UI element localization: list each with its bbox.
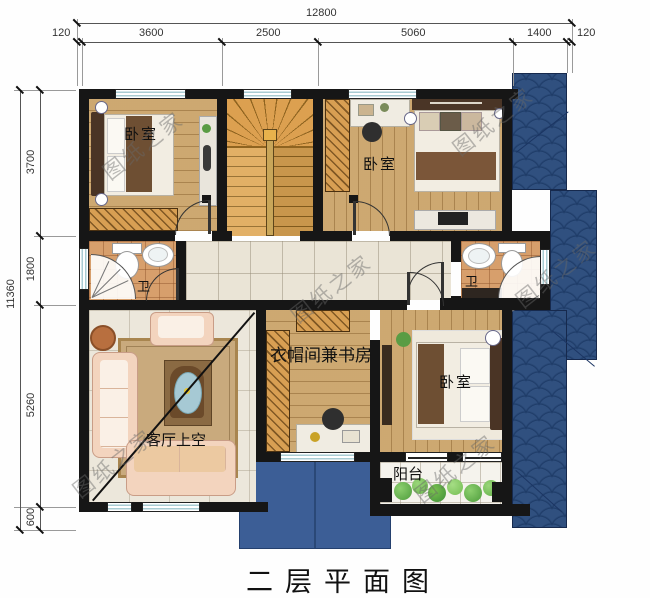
bed-headboard [91, 112, 104, 196]
dim-top-seg: 3600 [139, 27, 163, 39]
balcony-pier [380, 478, 392, 502]
dim-top-seg: 1400 [527, 27, 551, 39]
desk-item [358, 104, 374, 116]
dim-extension [572, 19, 573, 73]
room-label-bedroom-bottom-right: 卧室 [439, 371, 473, 392]
dim-left-seg: 3700 [25, 132, 37, 192]
dim-top-seg: 120 [52, 27, 70, 39]
wall-outer-left [79, 89, 89, 512]
wall [79, 300, 407, 310]
bed-blanket [416, 152, 496, 180]
dim-line-top-segments [77, 42, 572, 43]
window-top-3 [348, 89, 417, 99]
wall-balcony-right [502, 452, 512, 516]
tv [438, 212, 468, 225]
bed-pillow [419, 112, 440, 131]
dim-left-seg: 1800 [25, 239, 37, 299]
wardrobe-bedroom-top-left [89, 208, 178, 231]
wall-outer-right-mid [502, 310, 512, 452]
dim-extension [513, 38, 514, 86]
dim-left-seg: 600 [25, 487, 37, 547]
canopy-seam [314, 459, 316, 548]
wardrobe-bedroom-top-right [325, 99, 350, 192]
bedside-lamp [485, 330, 501, 346]
wall [451, 241, 461, 262]
door-leaf [441, 262, 444, 298]
dim-left-total: 11360 [5, 264, 17, 324]
room-label-cloakroom-study: 衣帽间兼书房 [270, 341, 372, 366]
bedside-lamp [95, 101, 108, 114]
plant-small [202, 124, 211, 133]
wall [300, 231, 352, 241]
desk-plant [380, 103, 389, 112]
wall-stair-right [313, 99, 323, 241]
dim-left-seg: 5260 [25, 375, 37, 435]
dim-extension [82, 38, 83, 86]
roof-right-lower [512, 310, 567, 528]
dim-extension [222, 38, 223, 86]
teapot [310, 432, 320, 442]
dim-line-top-total [77, 23, 572, 24]
tv-bench [382, 345, 392, 425]
armchair-cushion [158, 316, 204, 338]
room-label-bath-right: 卫 [465, 271, 478, 290]
dim-extension [14, 507, 76, 508]
bedside-lamp [404, 112, 417, 125]
wall-stair-left [217, 99, 227, 241]
window-bath-left [79, 248, 89, 290]
bedside-lamp [95, 193, 108, 206]
headboard-shelf-line [430, 102, 482, 104]
desk-chair [362, 122, 382, 142]
stair-newel-post [263, 129, 277, 141]
dim-top-seg: 5060 [401, 27, 425, 39]
dresser-decor [203, 145, 211, 171]
window-top-1 [115, 89, 186, 99]
wall [79, 231, 175, 241]
dim-top-total: 12800 [306, 7, 337, 19]
room-label-bath-left: 卫 [137, 276, 150, 295]
window-bottom-1 [107, 502, 132, 512]
dim-extension [318, 38, 319, 86]
window-study-bottom [280, 452, 355, 462]
wall-balcony-left [370, 452, 380, 516]
plant [464, 484, 482, 502]
dim-extension [14, 90, 76, 91]
floor-plan-canvas: 卧室 卧室 卧室 卫 卫 衣帽间兼书房 客厅上空 阳台 12800 120 36… [0, 0, 650, 598]
sink-basin [148, 247, 168, 262]
study-chair [322, 408, 344, 430]
dim-extension [14, 530, 76, 531]
door-leaf [353, 201, 356, 235]
sink-basin [468, 248, 490, 264]
window-top-2 [243, 89, 292, 99]
drawing-title: 二层平面图 [246, 560, 441, 598]
dim-top-seg: 2500 [256, 27, 280, 39]
room-label-bedroom-top-right: 卧室 [363, 153, 397, 174]
side-table [90, 325, 116, 351]
wall [390, 231, 550, 241]
dim-line-left-segments [40, 90, 41, 530]
door-leaf [208, 200, 211, 234]
wall [451, 296, 461, 302]
window-bottom-2 [142, 502, 200, 512]
dim-line-left-total [20, 90, 21, 530]
stair-railing [266, 132, 274, 236]
book [342, 430, 360, 443]
plant-small [396, 332, 411, 347]
wall-living-study [256, 300, 266, 462]
dim-extension [77, 19, 78, 86]
door-leaf [176, 268, 179, 300]
dim-top-seg: 120 [577, 27, 595, 39]
